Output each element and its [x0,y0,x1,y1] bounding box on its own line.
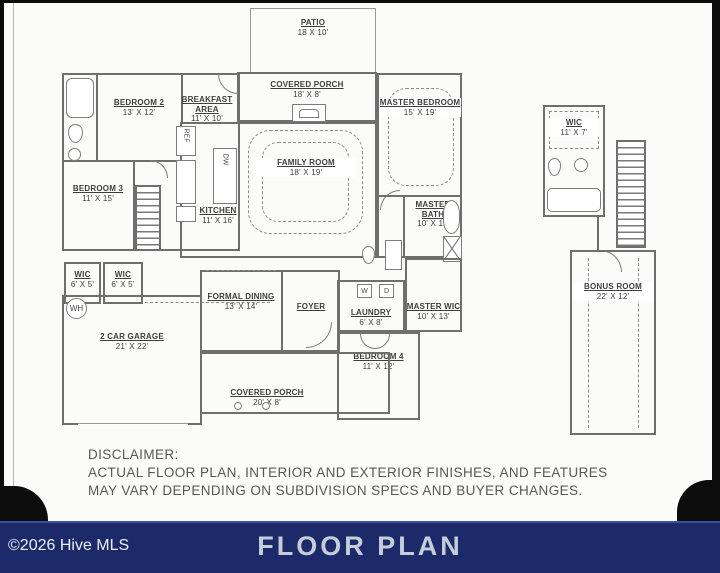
floor-plan-sheet: PATIO 18 X 10' COVERED PORCH 18' X 8' BE… [0,0,720,573]
room-dims: 22' X 12' [572,292,654,302]
room-name: MASTER WIC [403,302,464,312]
washer-label: W [357,288,372,295]
dishwasher-label: DW [222,150,229,170]
room-dims: 11' X 10' [178,114,236,124]
room-name: BREAKFAST AREA [178,95,236,114]
disclaimer-line2: MAY VARY DEPENDING ON SUBDIVISION SPECS … [88,482,608,500]
master-tub [443,200,460,234]
room-dims: 18' X 8' [237,90,377,100]
refrigerator-label: REF [183,126,190,146]
room-name: KITCHEN [188,206,248,216]
dryer-label: D [379,288,394,295]
room-name: COVERED PORCH [237,80,377,90]
room-dims: 13' X 12' [96,108,182,118]
room-name: FOYER [284,302,338,312]
room-name: MASTER BEDROOM [379,98,461,108]
room-dims: 15' X 19' [379,108,461,118]
upper-bathtub [547,188,601,212]
room-label-covered-porch-top: COVERED PORCH 18' X 8' [237,80,377,99]
room-label-formal-dining: FORMAL DINING 13' X 14' [200,292,282,311]
staircase-upper [616,140,646,248]
bathroom-sink [68,148,81,161]
room-label-breakfast-area: BREAKFAST AREA 11' X 10' [178,95,236,124]
dining-open-edge [206,270,276,271]
room-name: BONUS ROOM [572,282,654,292]
room-dims: 11' X 16' [188,216,248,226]
garage-outline [62,295,202,425]
frame-corner-bottom-left [4,486,48,522]
room-dims: 6' X 5' [64,280,101,290]
room-name: COVERED PORCH [203,388,331,398]
sheet-inner-border [13,3,14,521]
room-label-wic-b: WIC 6' X 5' [103,270,143,289]
room-dims: 13' X 14' [200,302,282,312]
room-dims: 10' X 13' [403,312,464,322]
room-dims: 18' X 19' [256,168,356,178]
page-title: FLOOR PLAN [0,531,720,562]
room-dims: 6' X 8' [337,318,405,328]
family-room-tray-inner [262,142,349,222]
fireplace-inner [299,109,319,118]
kitchen-counter [176,160,196,204]
room-label-wic-upper: WIC 11' X 7' [549,118,599,137]
bonus-room-outline [570,250,656,435]
bedroom2-bottom-wall [62,160,181,162]
hall-toilet [362,246,375,264]
room-name: 2 CAR GARAGE [62,332,202,342]
footer-bar: ©2026 Hive MLS FLOOR PLAN [0,521,720,573]
room-name: FORMAL DINING [200,292,282,302]
room-label-wic-a: WIC 6' X 5' [64,270,101,289]
porch-column-right [262,402,270,410]
room-name: WIC [549,118,599,128]
room-name: WIC [103,270,143,280]
room-dims: 21' X 22' [62,342,202,352]
room-dims: 18 X 10' [250,28,376,38]
upper-hall-wall [597,217,599,252]
room-name: LAUNDRY [337,308,405,318]
linen-x-icon [444,237,460,260]
disclaimer-heading: DISCLAIMER: [88,446,608,464]
room-label-bonus-room: BONUS ROOM 22' X 12' [572,282,654,301]
room-label-patio: PATIO 18 X 10' [250,18,376,37]
room-name: FAMILY ROOM [256,158,356,168]
room-name: BEDROOM 3 [62,184,134,194]
porch-column-left [234,402,242,410]
frame-corner-bottom-right [677,480,720,522]
bathroom-wall [96,73,98,160]
upper-sink [574,158,588,172]
room-label-foyer: FOYER [284,302,338,312]
room-dims: 11' X 7' [549,128,599,138]
room-label-master-wic: MASTER WIC 10' X 13' [403,302,464,321]
room-label-laundry: LAUNDRY 6' X 8' [337,308,405,327]
room-label-master-bedroom: MASTER BEDROOM 15' X 19' [379,98,461,117]
disclaimer-line1: ACTUAL FLOOR PLAN, INTERIOR AND EXTERIOR… [88,464,608,482]
bathtub [66,78,94,118]
room-name: WIC [64,270,101,280]
frame-top-edge [0,0,720,3]
room-name: PATIO [250,18,376,28]
staircase-main [135,185,161,251]
room-label-bedroom2: BEDROOM 2 13' X 12' [96,98,182,117]
room-label-bedroom3: BEDROOM 3 11' X 15' [62,184,134,203]
room-dims: 6' X 5' [103,280,143,290]
room-label-kitchen: KITCHEN 11' X 16' [188,206,248,225]
room-name: BEDROOM 2 [96,98,182,108]
disclaimer-block: DISCLAIMER: ACTUAL FLOOR PLAN, INTERIOR … [88,446,608,499]
room-dims: 11' X 15' [62,194,134,204]
shower-stall [385,240,402,270]
room-label-garage: 2 CAR GARAGE 21' X 22' [62,332,202,351]
garage-door-opening [78,423,188,425]
master-bath-top-wall [377,195,462,197]
room-label-family-room: FAMILY ROOM 18' X 19' [256,158,356,177]
